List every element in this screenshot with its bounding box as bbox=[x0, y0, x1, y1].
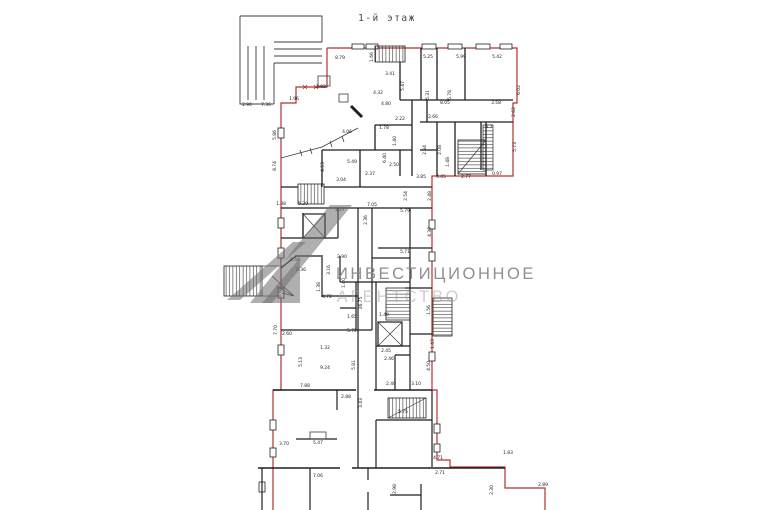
staircase-top bbox=[375, 46, 405, 62]
dimension-label: 2.84 bbox=[422, 145, 428, 155]
dimension-label: 5.42 bbox=[492, 54, 502, 60]
dimension-label: 2.50 bbox=[389, 162, 399, 168]
dimension-label: 2.46 bbox=[384, 356, 394, 362]
dimension-label: 5.72 bbox=[347, 328, 357, 334]
dimension-label: 1.48 bbox=[445, 157, 451, 167]
dimension-label: 2.90 bbox=[242, 102, 252, 108]
dimension-label: 2.48 bbox=[427, 191, 433, 201]
dimension-label: 2.22 bbox=[395, 116, 405, 122]
dimension-label: 4.50 bbox=[426, 361, 432, 371]
dimension-label: 5.79 bbox=[400, 208, 410, 214]
dimension-label: 4.05 bbox=[436, 174, 446, 180]
dimension-label: 5.71 bbox=[400, 249, 410, 255]
dimension-label: 0.97 bbox=[492, 171, 502, 177]
floor-plan-page: 1-й этаж bbox=[0, 0, 770, 510]
dimension-label: 2.62 bbox=[511, 107, 517, 117]
dimension-label: 7.70 bbox=[273, 325, 279, 335]
dimension-label: 1.40 bbox=[392, 136, 398, 146]
dimension-label: 3.16 bbox=[326, 265, 332, 275]
dimension-label: 4.06 bbox=[342, 129, 352, 135]
dimension-label: 5.13 bbox=[298, 357, 304, 367]
dimension-label: 1.96 bbox=[289, 96, 299, 102]
dimension-label: 4.72 bbox=[322, 294, 332, 300]
dimension-label: 5.25 bbox=[423, 54, 433, 60]
dimension-label: 2.36 bbox=[363, 215, 369, 225]
dimension-label: 2.37 bbox=[365, 171, 375, 177]
dimension-label: 8.05 bbox=[440, 100, 450, 106]
dimension-label: 7.88 bbox=[300, 383, 310, 389]
dimension-label: 7.05 bbox=[367, 202, 377, 208]
dimension-label: 4.30 bbox=[427, 227, 433, 237]
dimension-label: 5.47 bbox=[313, 440, 323, 446]
dimension-label: 1.49 bbox=[379, 312, 389, 318]
dimension-label: 3.58 bbox=[491, 100, 501, 106]
stair-shaft-right bbox=[483, 125, 493, 170]
dimension-label: 1.43 bbox=[430, 339, 436, 349]
dimension-label: 1.38 bbox=[276, 201, 286, 207]
dimension-label: 2.71 bbox=[435, 470, 445, 476]
staircase-junction bbox=[298, 184, 324, 204]
dimension-label: 5.81 bbox=[351, 360, 357, 370]
dimension-label: 5.99 bbox=[456, 54, 466, 60]
watermark-text-line1: ИНВЕСТИЦИОННОЕ bbox=[336, 265, 536, 283]
dimension-label: 2.66 bbox=[428, 114, 438, 120]
dimension-label: 1.78 bbox=[379, 125, 389, 131]
dimension-label: 2.88 bbox=[341, 394, 351, 400]
dimension-label: 6.02 bbox=[516, 85, 522, 95]
dimension-label: 1.83 bbox=[503, 450, 513, 456]
dimension-label: 3.85 bbox=[416, 174, 426, 180]
dimension-label: 1.38 bbox=[316, 282, 322, 292]
dimension-label: 5.75 bbox=[398, 409, 408, 415]
watermark: ИНВЕСТИЦИОННОЕ АГЕНТСТВО bbox=[227, 205, 536, 306]
dimension-label: 2.54 bbox=[403, 191, 409, 201]
watermark-text-line2: АГЕНТСТВО bbox=[337, 288, 462, 306]
porch-steps bbox=[240, 16, 322, 104]
dimension-label: 1.66 bbox=[369, 52, 375, 62]
dimension-label: 1.56 bbox=[426, 305, 432, 315]
dimension-label: 3.70 bbox=[279, 441, 289, 447]
dimension-label: 8.79 bbox=[335, 55, 345, 61]
dimension-label: 5.31 bbox=[425, 90, 431, 100]
dimension-label: 2.89 bbox=[538, 482, 548, 488]
dimension-label: 7.06 bbox=[313, 473, 323, 479]
staircase-bottom bbox=[388, 398, 426, 418]
dimension-label: 4.80 bbox=[381, 101, 391, 107]
dimension-label: 1.65 bbox=[347, 314, 357, 320]
dimension-label: 5.7 bbox=[486, 124, 493, 130]
staircase-upper-right bbox=[458, 140, 486, 174]
dimension-label: 5.73 bbox=[512, 142, 518, 152]
dimension-label: 2.02 bbox=[316, 84, 326, 90]
dimension-label: 7.36 bbox=[261, 102, 271, 108]
dimension-label: 8.74 bbox=[272, 161, 278, 171]
dimension-label: 3.41 bbox=[385, 71, 395, 77]
dimension-label: 2.40 bbox=[386, 381, 396, 387]
dimension-label: 2.77 bbox=[461, 174, 471, 180]
dimension-label: 2.90 bbox=[337, 254, 347, 260]
dimension-label: 1.32 bbox=[320, 345, 330, 351]
dimension-label: 3.43 bbox=[358, 398, 364, 408]
dimension-label: 3.04 bbox=[336, 177, 346, 183]
dimension-label: 4.71 bbox=[433, 455, 443, 461]
dimension-label: 2.60 bbox=[282, 331, 292, 337]
dimension-label: 5.49 bbox=[347, 159, 357, 165]
dimension-label: 5.47 bbox=[400, 81, 406, 91]
dimension-label: 2.98 bbox=[392, 484, 398, 494]
elevator-shaft-2 bbox=[378, 322, 402, 346]
dimension-label: 6.40 bbox=[382, 153, 388, 163]
dimension-label: 3.10 bbox=[411, 381, 421, 387]
dimension-label: 5.86 bbox=[272, 130, 278, 140]
dimension-label: 4.32 bbox=[373, 90, 383, 96]
dimension-label: 2.30 bbox=[489, 485, 495, 495]
dimension-label: 5.20 bbox=[298, 201, 308, 207]
dimension-label: 2.08 bbox=[437, 145, 443, 155]
floor-plan-canvas: 1-й этаж bbox=[0, 0, 770, 510]
dimension-label: 4.53 bbox=[320, 162, 326, 172]
dimension-label: 9.24 bbox=[320, 365, 330, 371]
dimension-label: 2.45 bbox=[381, 348, 391, 354]
dimension-label: 5.78 bbox=[447, 90, 453, 100]
plan-title: 1-й этаж bbox=[358, 13, 416, 24]
